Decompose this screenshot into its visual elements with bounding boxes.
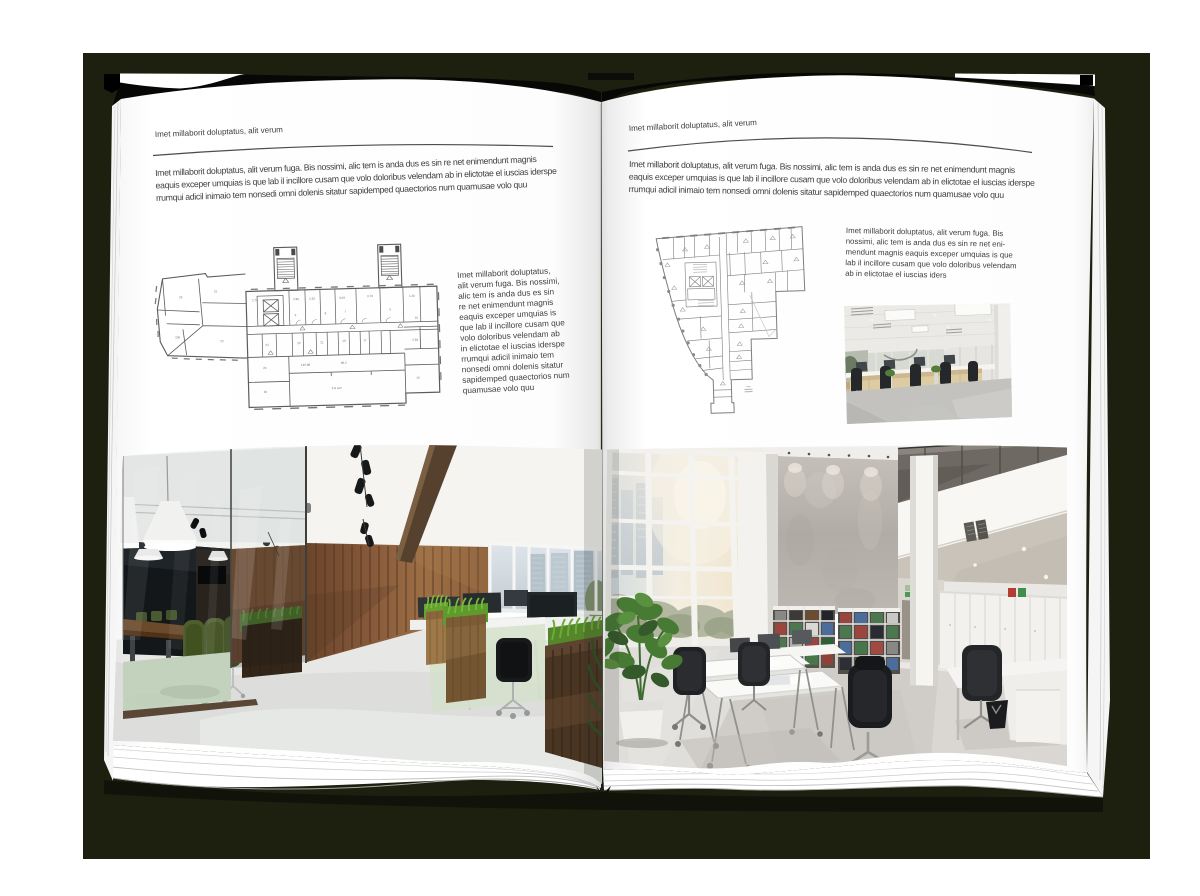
- svg-text:21: 21: [320, 340, 324, 344]
- svg-text:29: 29: [264, 390, 268, 394]
- svg-text:2.80: 2.80: [293, 297, 299, 301]
- svg-text:25: 25: [220, 339, 224, 343]
- svg-text:1.40: 1.40: [409, 294, 415, 298]
- svg-text:2-й зал: 2-й зал: [332, 386, 342, 390]
- svg-text:31: 31: [214, 289, 218, 293]
- svg-text:2.75: 2.75: [252, 298, 258, 302]
- svg-text:22: 22: [297, 341, 301, 345]
- svg-text:3.09: 3.09: [339, 296, 345, 300]
- svg-text:3.79: 3.79: [367, 294, 373, 298]
- svg-text:86.2: 86.2: [341, 361, 347, 365]
- svg-text:23: 23: [263, 366, 267, 370]
- svg-text:16: 16: [416, 376, 420, 380]
- svg-text:2.30: 2.30: [309, 297, 315, 301]
- svg-text:19: 19: [342, 339, 346, 343]
- svg-text:24: 24: [265, 343, 269, 347]
- svg-text:5.84: 5.84: [412, 338, 418, 342]
- svg-text:206: 206: [175, 335, 180, 339]
- svg-text:17: 17: [363, 338, 367, 342]
- svg-text:10: 10: [415, 316, 419, 320]
- svg-text:26: 26: [179, 295, 183, 299]
- svg-text:146.88: 146.88: [301, 363, 311, 367]
